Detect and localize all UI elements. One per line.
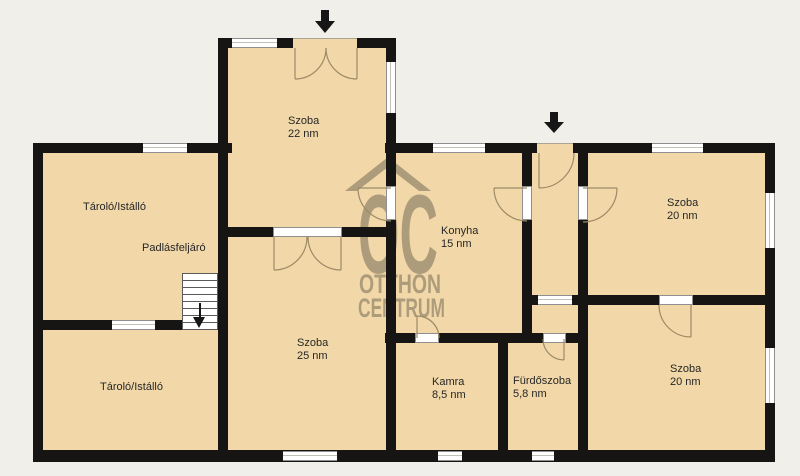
room-label-tarolo-top: Tároló/Istálló [83, 201, 146, 214]
window-hall-south [538, 295, 572, 305]
room-label-padlasfeljaro: Padlásfeljáró [142, 242, 206, 255]
window-furdoszoba-south [532, 451, 554, 461]
door-opening-hall-szoba20-top [578, 186, 588, 220]
wall-kitchen-right [522, 143, 532, 343]
window-szoba22-east [386, 62, 396, 113]
window-kitchen-north [433, 143, 485, 153]
room-label-szoba25: Szoba 25 nm [297, 337, 328, 363]
entrance-arrow-icon-hall [544, 112, 564, 133]
door-opening-szoba20-bottom [659, 295, 693, 305]
room-name: Fürdőszoba [513, 375, 571, 388]
door-opening-kamra [415, 333, 439, 343]
door-opening-szoba22-szoba25 [273, 227, 342, 237]
window-left-block-north [143, 143, 187, 153]
entrance-arrow-icon-szoba22 [315, 10, 335, 33]
room-name: Padlásfeljáró [142, 242, 206, 255]
room-name: Kamra [432, 376, 466, 389]
window-szoba22-north [232, 38, 277, 48]
room-name: Szoba [288, 115, 319, 128]
stairs-direction-line [199, 303, 201, 318]
room-name: Szoba [297, 337, 328, 350]
wall-kamra-furdoszoba-divider [498, 333, 508, 462]
window-left-block-divider [112, 320, 155, 330]
room-label-konyha: Konyha 15 nm [441, 225, 478, 251]
wall-building-right [765, 143, 775, 462]
room-label-kamra: Kamra 8,5 nm [432, 376, 466, 402]
wall-building-bottom [33, 450, 775, 462]
wall-building-left [33, 143, 43, 462]
room-label-szoba20-bottom: Szoba 20 nm [670, 363, 701, 389]
room-area: 20 nm [667, 210, 698, 223]
window-szoba20-top-north [652, 143, 703, 153]
floor-plan: OC OTTHON CENTRUM [0, 0, 800, 476]
stairs-down-arrow-icon [193, 317, 205, 328]
room-area: 25 nm [297, 350, 328, 363]
room-area: 20 nm [670, 376, 701, 389]
room-label-szoba20-top: Szoba 20 nm [667, 197, 698, 223]
room-area: 8,5 nm [432, 389, 466, 402]
room-area: 22 nm [288, 128, 319, 141]
room-label-furdoszoba: Fürdőszoba 5,8 nm [513, 375, 571, 401]
room-label-szoba22: Szoba 22 nm [288, 115, 319, 141]
window-szoba25-south [283, 451, 337, 461]
door-opening-szoba22-kitchen [386, 186, 396, 220]
window-szoba20-top-east [765, 193, 775, 248]
door-opening-hall-kitchen [522, 186, 532, 220]
door-opening-hall-entrance [537, 143, 573, 153]
wall-left-block-divider [33, 320, 183, 330]
room-name: Konyha [441, 225, 478, 238]
window-szoba20-bottom-east [765, 348, 775, 403]
wall-middle-wing-left [218, 38, 228, 462]
room-name: Tároló/Istálló [83, 201, 146, 214]
room-name: Szoba [667, 197, 698, 210]
door-opening-szoba22-entrance [293, 38, 357, 48]
door-opening-furdoszoba [543, 333, 566, 343]
wall-left-block-top [33, 143, 232, 153]
room-area: 5,8 nm [513, 388, 571, 401]
room-label-tarolo-bottom: Tároló/Istálló [100, 381, 163, 394]
room-name: Tároló/Istálló [100, 381, 163, 394]
room-name: Szoba [670, 363, 701, 376]
room-area: 15 nm [441, 238, 478, 251]
window-kamra-south [438, 451, 462, 461]
room-fill-middle-wing [223, 43, 391, 455]
